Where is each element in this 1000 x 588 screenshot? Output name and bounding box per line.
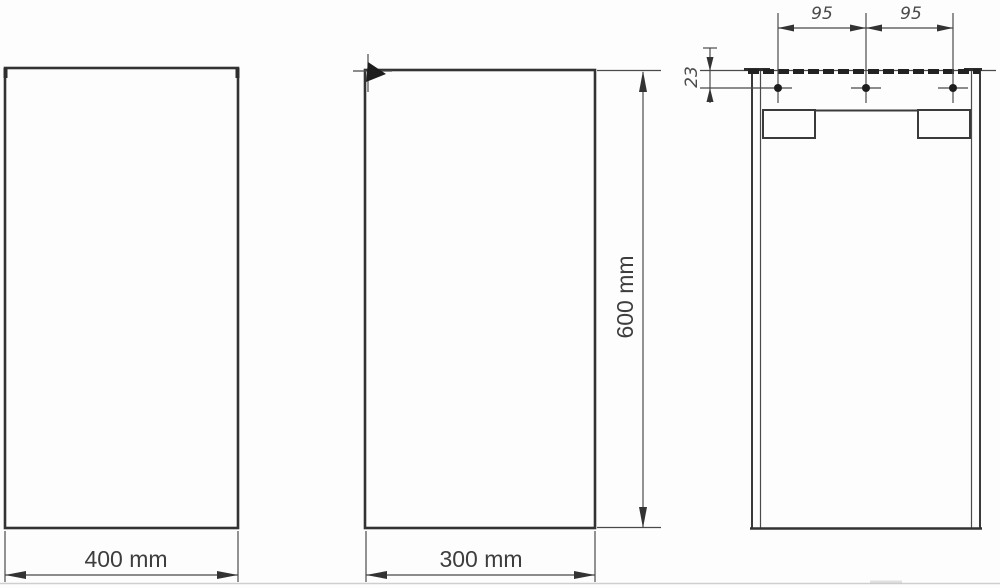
hole-spacing-right-label: 95 [900, 4, 922, 24]
mounting-hole-right [949, 84, 957, 92]
technical-drawing-canvas: 400 mm 300 mm 600 mm [0, 0, 1000, 588]
mounting-hole-left [774, 84, 782, 92]
mounting-hole-middle [862, 84, 870, 92]
drawing-page: 400 mm 300 mm 600 mm [0, 0, 1000, 588]
height-label: 600 mm [612, 255, 638, 338]
side-depth-label: 300 mm [439, 546, 522, 572]
front-width-label: 400 mm [84, 546, 167, 572]
paper-background [0, 0, 1000, 588]
hole-offset-label: 23 [682, 66, 702, 88]
hole-spacing-left-label: 95 [811, 4, 833, 24]
